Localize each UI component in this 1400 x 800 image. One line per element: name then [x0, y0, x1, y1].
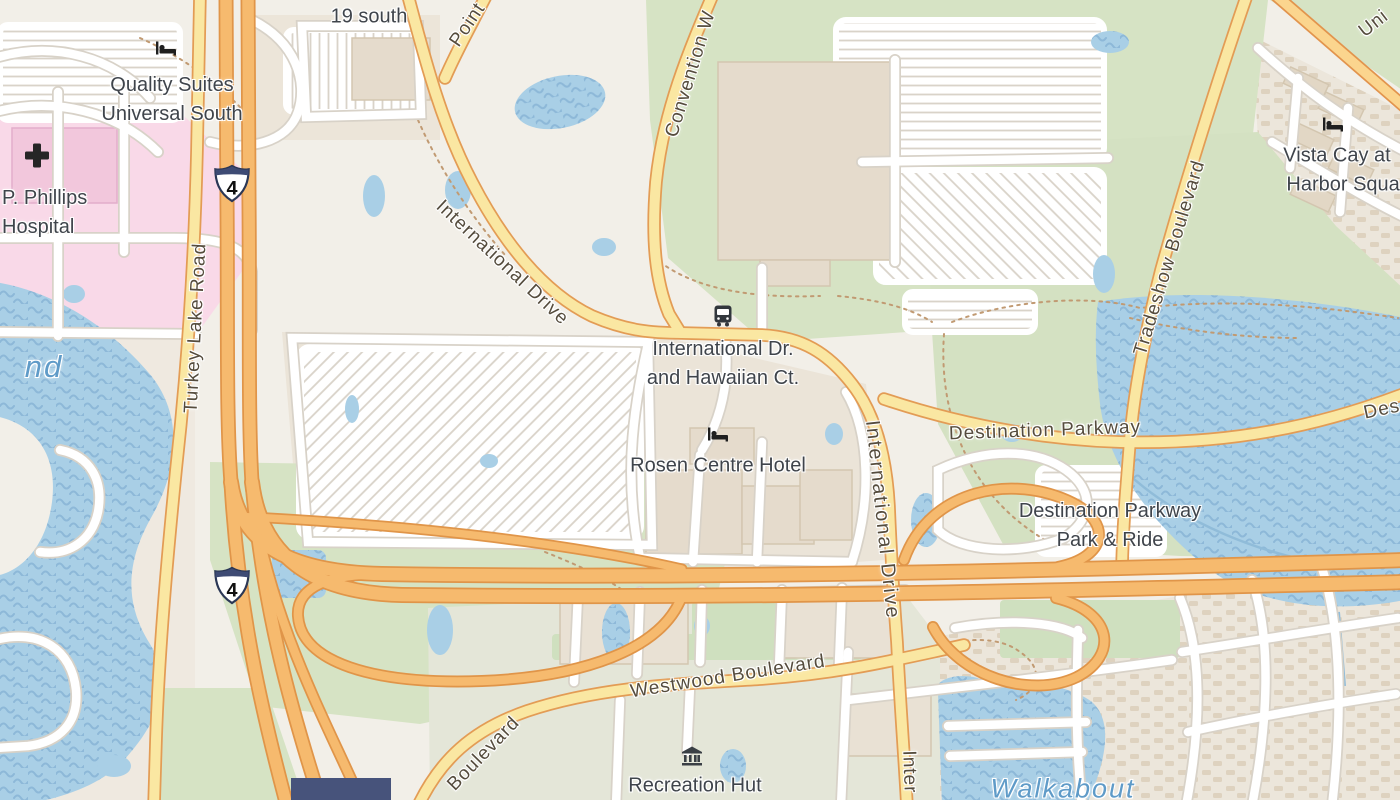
label-international-drive-south-partial: Inter — [897, 750, 920, 794]
label-line: and Hawaiian Ct. — [647, 364, 799, 393]
label-rosen-centre-hotel: Rosen Centre Hotel — [630, 452, 806, 481]
label-19-south: 19 south — [331, 3, 408, 32]
interstate-4-shield: 4 — [214, 165, 250, 208]
hospital-cross-icon[interactable] — [24, 143, 50, 174]
interstate-4-shield-south: 4 — [214, 567, 250, 610]
shield-number: 4 — [226, 177, 237, 199]
label-line: Park & Ride — [1019, 526, 1201, 555]
hotel-bed-icon[interactable] — [154, 40, 178, 63]
label-line: P. Phillips — [2, 184, 87, 213]
label-line: Universal South — [101, 100, 242, 129]
label-destination-parkway-park-and-ride: Destination Parkway Park & Ride — [1019, 497, 1201, 555]
shield-number: 4 — [226, 579, 237, 601]
label-line: Hospital — [2, 213, 87, 242]
hotel-bed-icon[interactable] — [1321, 116, 1345, 139]
label-recreation-hut: Recreation Hut — [628, 772, 761, 800]
label-walkabout-water: Walkabout — [990, 774, 1135, 800]
label-lake-name-partial: nd — [25, 349, 63, 385]
label-quality-suites: Quality Suites Universal South — [101, 71, 242, 129]
label-line: Quality Suites — [101, 71, 242, 100]
label-line: International Dr. — [647, 335, 799, 364]
interstate-shield-icon: 4 — [214, 567, 250, 605]
bridge-overpass — [291, 778, 391, 800]
hotel-bed-icon[interactable] — [706, 426, 730, 449]
label-bus-stop-international-hawaiian: International Dr. and Hawaiian Ct. — [647, 335, 799, 393]
parking-lot-central — [300, 348, 640, 536]
interstate-shield-icon: 4 — [214, 165, 250, 203]
museum-columns-icon[interactable] — [680, 745, 704, 771]
map-viewport[interactable]: 4 4 19 south Quality Suites Universal So… — [0, 0, 1400, 800]
label-line: Destination Parkway — [1019, 497, 1201, 526]
bus-stop-icon[interactable] — [713, 304, 734, 332]
label-vista-cay-line2: Harbor Square — [1286, 171, 1400, 200]
label-vista-cay-line1: Vista Cay at — [1283, 142, 1390, 171]
label-phillips-hospital: P. Phillips Hospital — [2, 184, 87, 242]
